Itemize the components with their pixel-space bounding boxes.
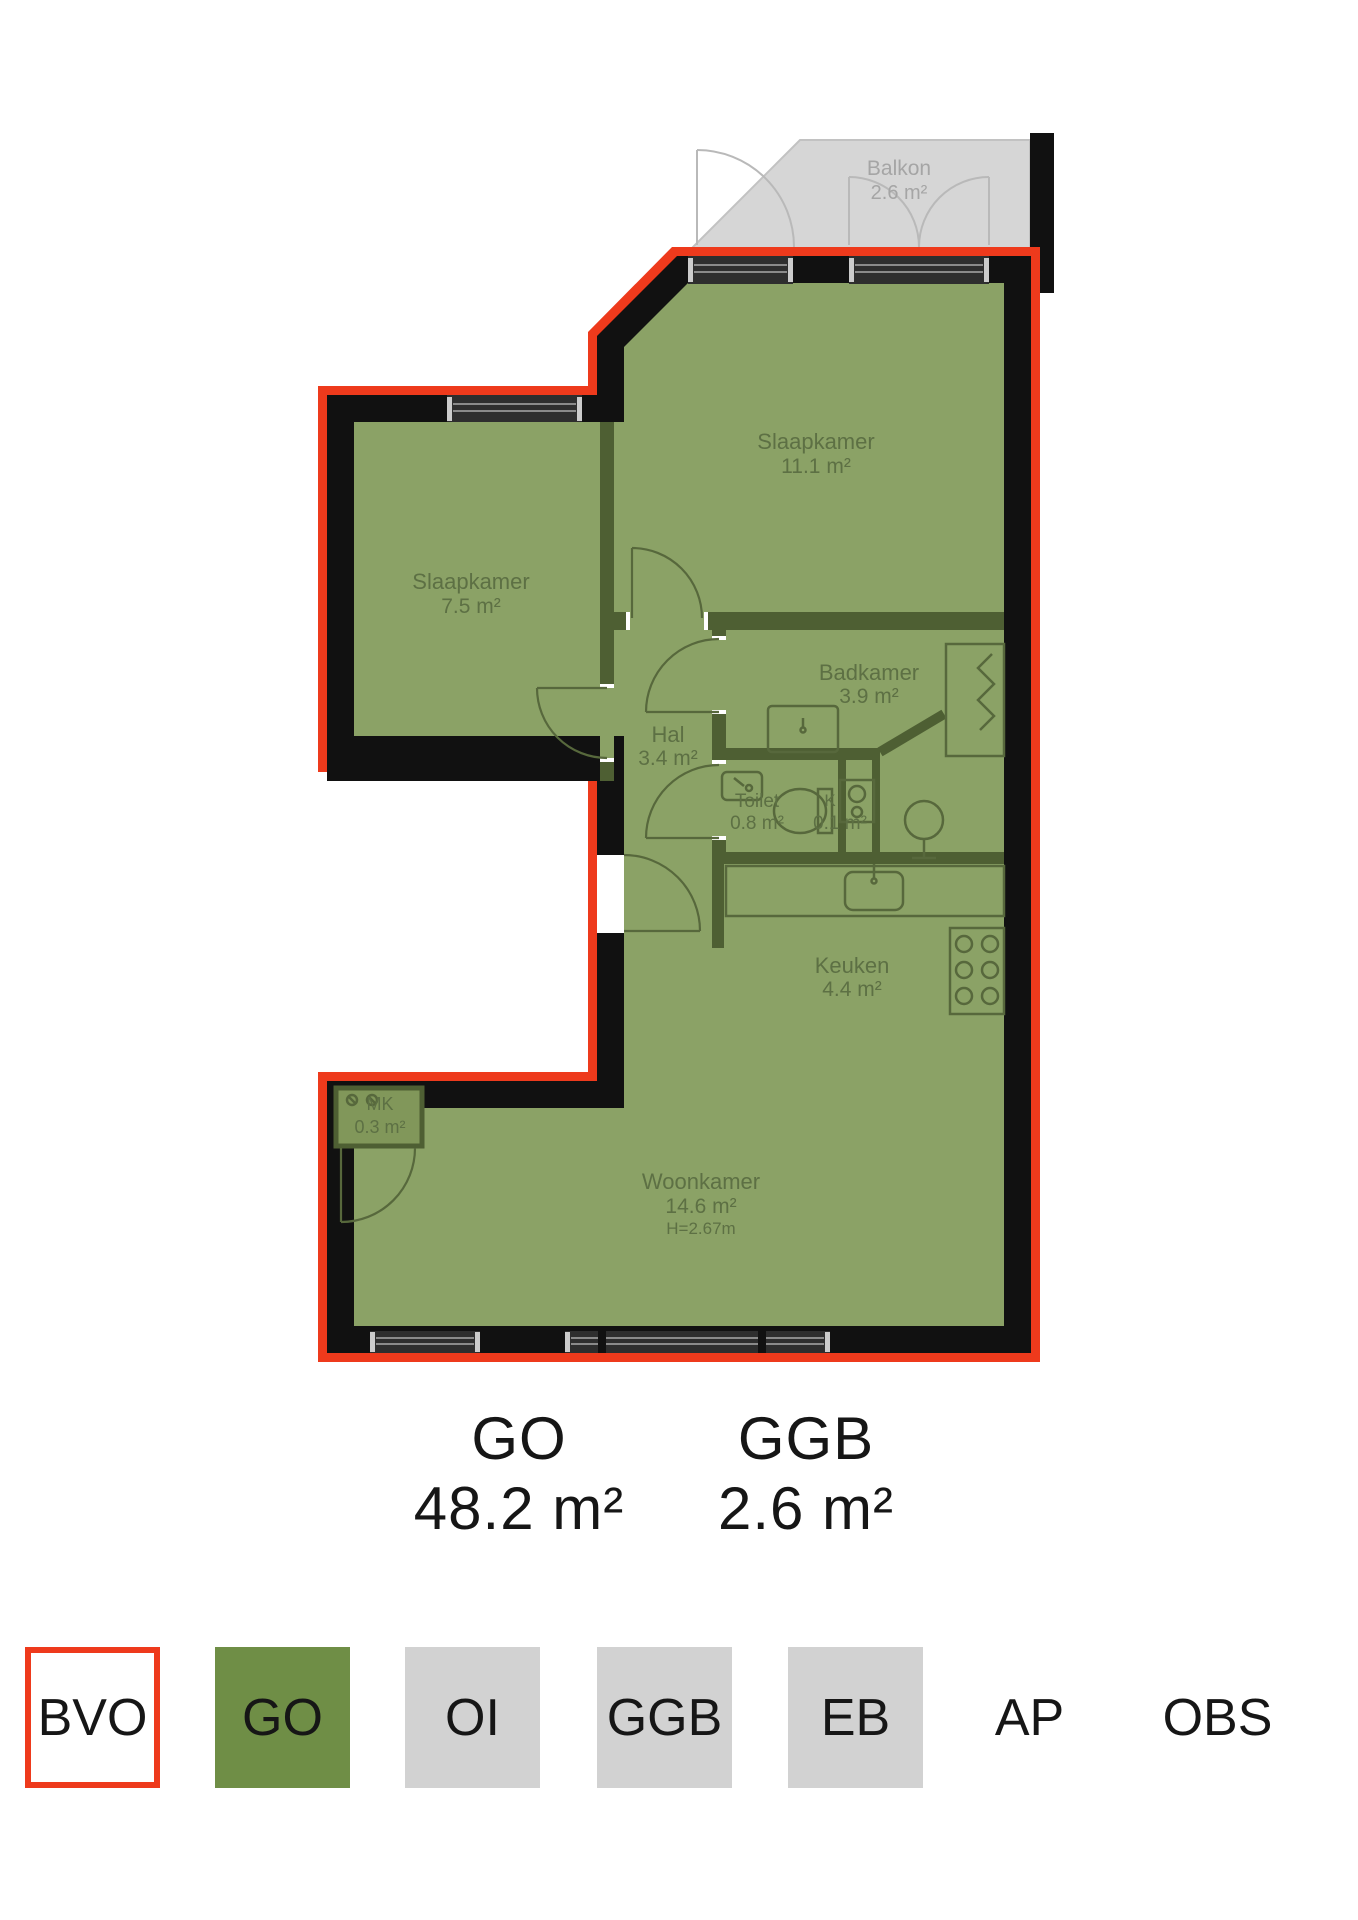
legend-swatch-oi: OI <box>405 1647 540 1788</box>
window-top-1 <box>688 256 793 284</box>
floorplan-page: Balkon 2.6 m² Slaapkamer 11.1 m² Slaapka… <box>0 0 1358 1920</box>
window-top-2 <box>849 256 989 284</box>
label-woonkamer-name: Woonkamer <box>642 1169 760 1194</box>
label-slaapkamer2-name: Slaapkamer <box>412 569 529 594</box>
label-mk-name: MK <box>367 1094 394 1114</box>
label-slaapkamer2-area: 7.5 m² <box>441 595 501 618</box>
legend-label-obs: OBS <box>1150 1647 1285 1788</box>
legend-label-go: GO <box>242 1688 323 1748</box>
label-woonkamer-area: 14.6 m² <box>665 1195 736 1218</box>
window-bedroom <box>447 395 582 422</box>
label-balkon-area: 2.6 m² <box>871 182 928 204</box>
total-ggb: GGB 2.6 m² <box>646 1404 966 1544</box>
total-go-label: GO <box>359 1404 679 1474</box>
label-keuken-name: Keuken <box>815 953 890 978</box>
floorplan-drawing: Balkon 2.6 m² Slaapkamer 11.1 m² Slaapka… <box>0 0 1358 1420</box>
label-balkon-name: Balkon <box>867 157 931 180</box>
legend-swatch-ggb: GGB <box>597 1647 732 1788</box>
legend-label-bvo: BVO <box>38 1688 148 1748</box>
total-go: GO 48.2 m² <box>359 1404 679 1544</box>
label-hal-name: Hal <box>651 722 684 747</box>
label-toilet-area: 0.8 m² <box>730 813 784 834</box>
label-mk-area: 0.3 m² <box>354 1117 405 1137</box>
legend-label-ap: AP <box>962 1647 1097 1788</box>
legend-swatch-eb: EB <box>788 1647 923 1788</box>
total-ggb-label: GGB <box>646 1404 966 1474</box>
label-toilet-name: Toilet <box>735 791 780 812</box>
label-woonkamer-height: H=2.67m <box>666 1219 735 1238</box>
label-keuken-area: 4.4 m² <box>822 978 882 1001</box>
label-slaapkamer1-name: Slaapkamer <box>757 429 874 454</box>
window-bottom-2 <box>565 1331 830 1353</box>
total-go-value: 48.2 m² <box>359 1474 679 1544</box>
legend-label-eb: EB <box>821 1688 890 1748</box>
label-koker-name: K <box>824 791 836 810</box>
legend-label-oi: OI <box>445 1688 500 1748</box>
total-ggb-value: 2.6 m² <box>646 1474 966 1544</box>
legend-label-ggb: GGB <box>607 1688 723 1748</box>
label-badkamer-name: Badkamer <box>819 660 919 685</box>
legend-swatch-bvo: BVO <box>25 1647 160 1788</box>
legend-swatch-go: GO <box>215 1647 350 1788</box>
label-koker-area: 0.1 m² <box>813 813 867 834</box>
window-bottom-1 <box>370 1331 480 1353</box>
label-slaapkamer1-area: 11.1 m² <box>781 455 851 478</box>
label-badkamer-area: 3.9 m² <box>839 685 899 708</box>
label-hal-area: 3.4 m² <box>638 747 698 770</box>
